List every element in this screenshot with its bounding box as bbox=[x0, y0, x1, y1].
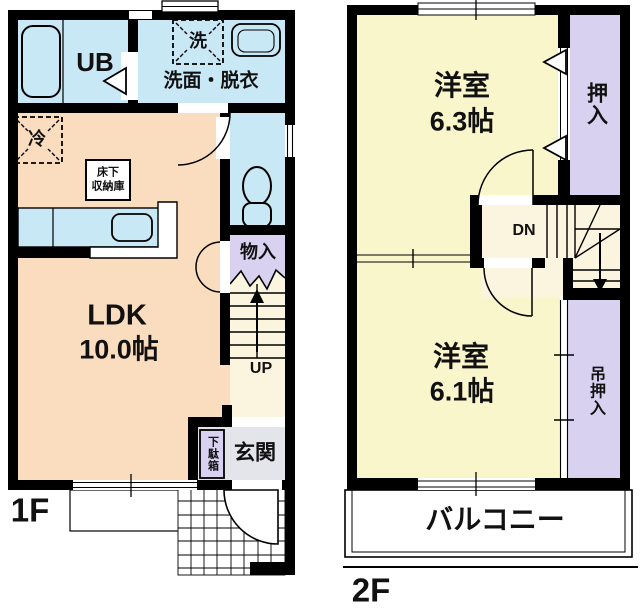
label-washroom: 洗面・脱衣 bbox=[163, 72, 258, 91]
label-room-a: 洋室 bbox=[434, 72, 490, 100]
label-storage: 物入 bbox=[240, 243, 276, 261]
label-floor1: 1F bbox=[11, 494, 50, 527]
terrace bbox=[70, 490, 180, 531]
label-balcony: バルコニー bbox=[425, 506, 564, 534]
label-room-b-area: 6.1帖 bbox=[430, 379, 495, 406]
label-closet-b: 吊押入 bbox=[587, 366, 603, 417]
label-stair-up: UP bbox=[250, 361, 272, 377]
label-room-a-area: 6.3帖 bbox=[430, 109, 495, 136]
label-stair-down: DN bbox=[512, 223, 535, 239]
label-ldk-area: 10.0帖 bbox=[79, 337, 159, 364]
label-closet-a: 押入 bbox=[586, 82, 607, 126]
label-shoe-cabinet: 下駄箱 bbox=[207, 436, 218, 472]
label-underfloor-2: 収納庫 bbox=[92, 182, 125, 193]
floorplan-canvas: UB 洗 洗面・脱衣 冷 床下 収納庫 LDK 10.0帖 物入 UP 玄関 下… bbox=[0, 0, 640, 615]
label-washer: 洗 bbox=[189, 32, 207, 50]
toilet-tank bbox=[243, 203, 271, 227]
label-unit-bath: UB bbox=[76, 49, 114, 75]
label-floor2: 2F bbox=[352, 574, 391, 607]
label-fridge: 冷 bbox=[28, 130, 46, 148]
label-ldk: LDK bbox=[87, 302, 147, 331]
label-entrance: 玄関 bbox=[234, 443, 276, 464]
label-room-b: 洋室 bbox=[433, 343, 489, 371]
label-underfloor-1: 床下 bbox=[97, 168, 119, 179]
